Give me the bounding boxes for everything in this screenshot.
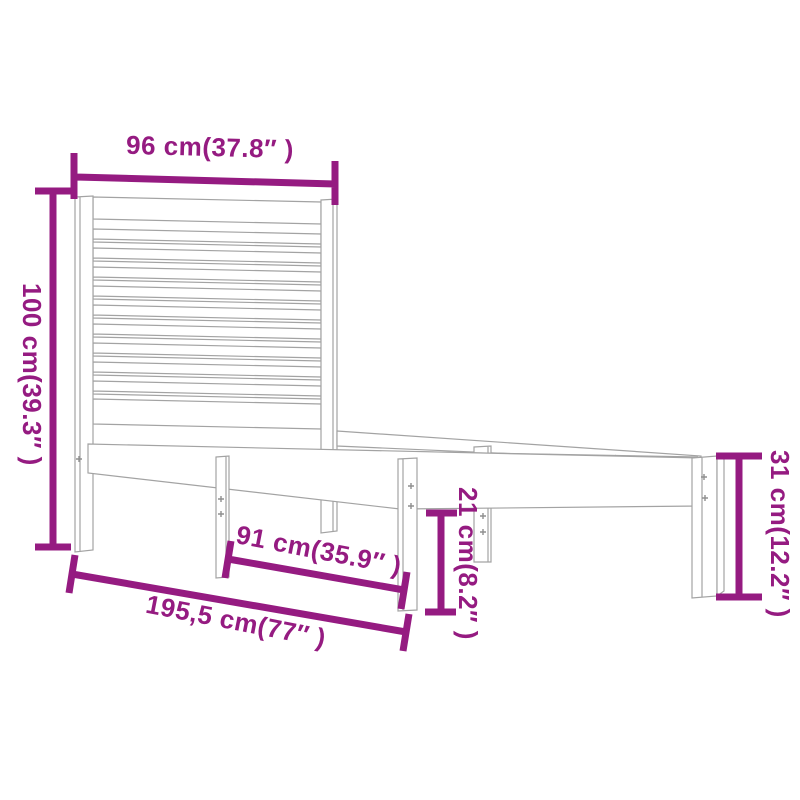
dimension-label-headboard-width: 96 cm(37.8″ ) <box>126 132 294 162</box>
headboard-post-left <box>75 196 93 552</box>
dimension-label-headboard-height: 100 cm(39.3″ ) <box>19 283 45 466</box>
headboard <box>75 196 337 552</box>
product-dimension-diagram: 96 cm(37.8″ ) 100 cm(39.3″ ) 91 cm(35.9″… <box>0 0 800 800</box>
foot-leg <box>692 455 724 598</box>
bed-frame-line-drawing <box>0 0 800 800</box>
dimension-label-clearance: 21 cm(8.2″ ) <box>455 487 481 640</box>
dimension-label-frame-height: 31 cm(12.2″ ) <box>767 450 793 618</box>
headboard-slats <box>93 229 321 399</box>
bed-frame <box>75 196 724 611</box>
headboard-top-rail <box>93 197 321 224</box>
headboard-bottom-rail <box>93 399 321 429</box>
